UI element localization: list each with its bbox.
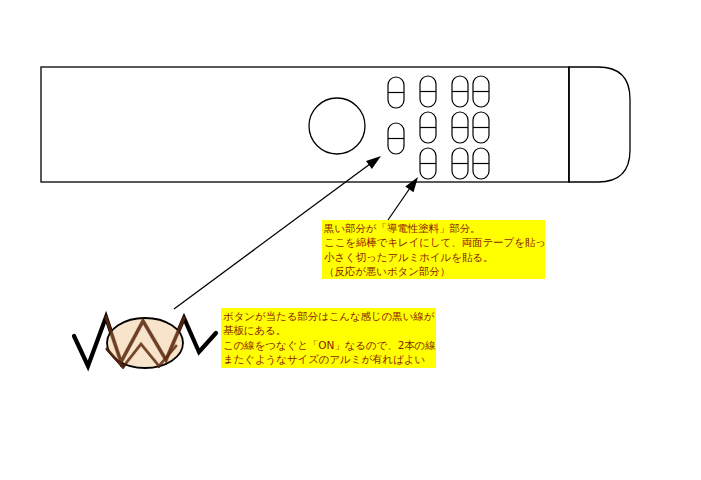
pcb-trace-drawing [74, 317, 216, 368]
button-pill [473, 148, 489, 179]
button-pill [420, 148, 436, 179]
note-text-line: この線をつなぐと「ON」なるので、2本の線を [223, 338, 434, 352]
note-text-line: 黒い部分が「導電性塗料」部分。 [324, 221, 543, 235]
note-text-line: 小さく切ったアルミホイルを貼る。 [324, 250, 543, 264]
arrow-icon [388, 177, 418, 220]
note-text-line: ここを綿棒でキレイにして、両面テープを貼って [324, 235, 543, 249]
note-text-line: またぐようなサイズのアルミが有ればよい [223, 352, 434, 366]
note-text-line: ボタンが当たる部分はこんな感じの黒い線が [223, 309, 434, 323]
button-pill [420, 112, 436, 143]
button-pill [388, 123, 404, 154]
note-text-line: 基板にある。 [223, 323, 434, 337]
button-pill [473, 76, 489, 107]
remote-end-cap [569, 67, 630, 182]
note-conductive-paint: 黒い部分が「導電性塗料」部分。 ここを綿棒でキレイにして、両面テープを貼って 小… [322, 220, 545, 279]
remote-control-body [41, 67, 630, 182]
note-pcb-trace: ボタンが当たる部分はこんな感じの黒い線が 基板にある。 この線をつなぐと「ON」… [221, 308, 436, 368]
button-pill [473, 112, 489, 143]
circle-button [309, 98, 365, 154]
remote-body-rect [41, 67, 569, 182]
button-pill [452, 148, 468, 179]
button-pill [420, 76, 436, 107]
button-pill [452, 76, 468, 107]
note-text-line: （反応が悪いボタン部分） [324, 264, 543, 278]
diagram-canvas: 黒い部分が「導電性塗料」部分。 ここを綿棒でキレイにして、両面テープを貼って 小… [0, 0, 701, 480]
button-pill [452, 112, 468, 143]
button-pill [388, 77, 404, 108]
